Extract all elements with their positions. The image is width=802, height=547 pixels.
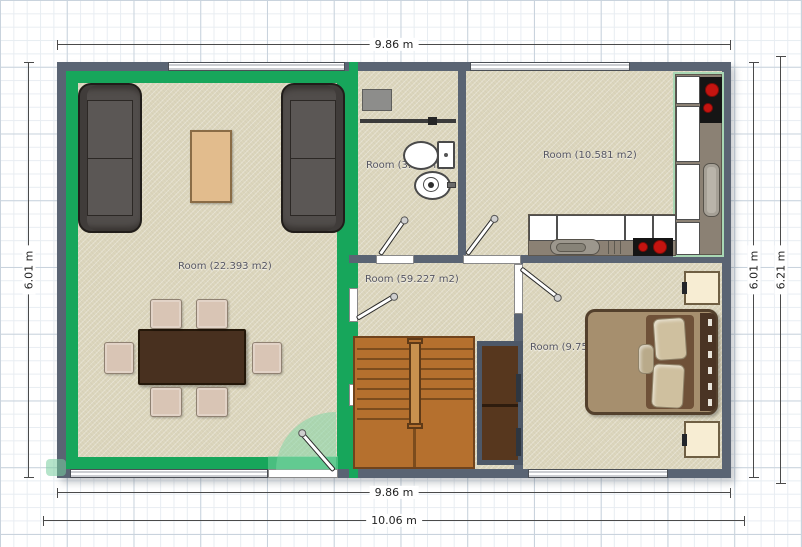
kitchen-cabinet (676, 76, 700, 104)
toilet-bowl[interactable] (403, 141, 439, 170)
burner-icon (653, 240, 667, 254)
bed-headboard (700, 313, 716, 411)
closet-shelf-divider (482, 404, 518, 407)
railing-cap (407, 338, 423, 344)
cooktop-wall (700, 77, 722, 123)
cooktop-counter (633, 238, 673, 256)
selection-corner-handle[interactable] (46, 459, 66, 476)
bed-pillow (651, 363, 685, 409)
floorplan-canvas: Room (22.393 m2) Room (3.823 m2) Room (1… (0, 0, 802, 547)
dimension-left-label: 6.01 m (23, 246, 36, 295)
door-kitchen-threshold[interactable] (463, 255, 521, 264)
dimension-bottom-inner: 9.86 m (57, 492, 731, 493)
headboard-notch (708, 399, 712, 406)
dining-chair[interactable] (104, 342, 134, 374)
nightstand-bottom[interactable] (684, 421, 720, 458)
wall-exterior-right[interactable] (722, 62, 731, 478)
door-exterior-threshold[interactable] (268, 469, 338, 478)
kitchen-cabinet (676, 222, 700, 255)
dimension-right-outer: 6.21 m (780, 56, 781, 484)
headboard-notch (708, 319, 712, 326)
towel-bar[interactable] (360, 119, 456, 123)
stair-railing (409, 338, 421, 429)
dining-table[interactable] (138, 329, 246, 385)
kitchen-cabinet (529, 215, 557, 241)
sink-drainer-lines (603, 241, 625, 254)
kitchen-cabinet (557, 215, 625, 241)
dimension-right-inner-label: 6.01 m (748, 246, 761, 295)
stair-treads-left (357, 340, 409, 426)
room-label-living: Room (22.393 m2) (178, 261, 272, 272)
dimension-left: 6.01 m (28, 62, 29, 478)
dining-chair[interactable] (196, 387, 228, 417)
burner-icon (703, 103, 713, 113)
closet-hinge (516, 428, 521, 456)
window-bedroom-bottom[interactable] (528, 469, 668, 478)
dining-chair[interactable] (196, 299, 228, 329)
window-living-bottom[interactable] (70, 469, 268, 478)
bed-pillow (653, 317, 688, 361)
room-label-hallway: Room (59.227 m2) (365, 274, 459, 285)
bidet-drain (428, 182, 434, 188)
counter-sink-basin (556, 243, 586, 252)
dimension-bottom-outer-label: 10.06 m (366, 514, 422, 527)
burner-icon (705, 83, 719, 97)
wall-exterior-left[interactable] (57, 62, 66, 478)
door-bathroom-threshold[interactable] (376, 255, 414, 264)
toilet-flush-button (444, 153, 448, 157)
kitchen-tall-units[interactable] (675, 74, 722, 255)
kitchen-sink-tall (703, 163, 720, 217)
towel-bar-handle (428, 117, 437, 125)
room-label-kitchen: Room (10.581 m2) (543, 150, 637, 161)
dining-chair[interactable] (150, 387, 182, 417)
bidet-faucet (447, 182, 456, 188)
dining-chair[interactable] (252, 342, 282, 374)
dimension-right-outer-label: 6.21 m (775, 246, 788, 295)
staircase[interactable] (353, 336, 475, 469)
headboard-notch (708, 383, 712, 390)
nightstand-top[interactable] (684, 271, 720, 305)
dimension-bottom-outer: 10.06 m (43, 520, 745, 521)
dimension-top: 9.86 m (57, 44, 731, 45)
kitchen-cabinet (676, 106, 700, 162)
headboard-notch (708, 335, 712, 342)
wall-bathroom-kitchen[interactable] (458, 62, 466, 263)
sofa-left[interactable] (78, 83, 142, 233)
sofa-right[interactable] (281, 83, 345, 233)
counter-sink (550, 239, 600, 255)
headboard-notch (708, 367, 712, 374)
coffee-table[interactable] (190, 130, 232, 203)
stair-landing-divider (413, 429, 416, 467)
kitchen-cabinet (676, 164, 700, 220)
bathroom-shelf[interactable] (362, 89, 392, 111)
dining-chair[interactable] (150, 299, 182, 329)
double-bed[interactable] (585, 309, 718, 415)
closet-hinge (516, 374, 521, 402)
burner-icon (638, 242, 648, 252)
kitchen-counter[interactable] (528, 214, 676, 256)
dimension-top-label: 9.86 m (370, 38, 419, 51)
room-label-bedroom: Room (9.75 (530, 342, 588, 353)
window-kitchen-top[interactable] (470, 62, 630, 71)
bed-pillow-small (638, 344, 654, 374)
headboard-notch (708, 351, 712, 358)
stair-treads-right (421, 340, 473, 408)
window-living-top[interactable] (168, 62, 345, 71)
dimension-right-inner: 6.01 m (753, 62, 754, 478)
dimension-bottom-inner-label: 9.86 m (370, 486, 419, 499)
